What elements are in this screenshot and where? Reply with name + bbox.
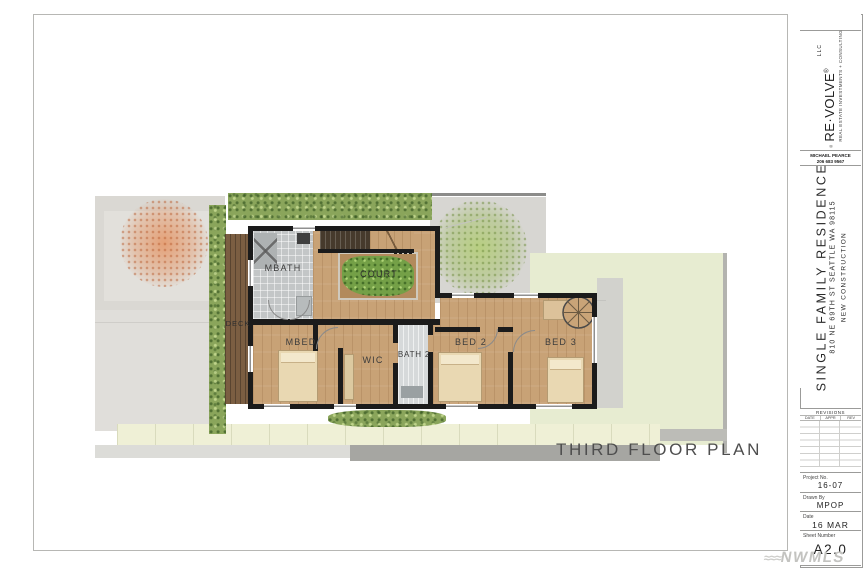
- project-no-value: 16-07: [800, 481, 861, 490]
- watermark-text: NWMLS: [779, 549, 846, 566]
- window: [592, 317, 597, 363]
- door-sill-marks: [394, 250, 414, 254]
- bed-2: [438, 352, 482, 402]
- site-roof-top-right-edge: [420, 193, 546, 196]
- project-address: 810 NE 69TH ST SEATTLE WA 98115: [830, 200, 839, 353]
- wall-segment: [498, 327, 513, 332]
- room-label-mbed: MBED: [277, 337, 325, 347]
- walkway-left: [95, 445, 353, 458]
- window: [452, 293, 474, 298]
- date-box: Date 16 MAR 2019: [800, 511, 861, 530]
- wall-segment: [338, 348, 343, 406]
- wall-segment: [248, 226, 253, 409]
- wall-segment: [393, 325, 398, 343]
- room-label-mbath: MBATH: [252, 263, 314, 273]
- contact-box: MICHAEL PEARCE 206 683 9567: [800, 150, 861, 165]
- spiral-stair: [562, 296, 595, 329]
- wall-segment: [248, 226, 440, 231]
- pillow: [441, 355, 479, 365]
- stair-landing: [370, 231, 414, 250]
- nautilus-shell-icon: [820, 145, 842, 148]
- room-label-bath2: BATH 2: [391, 350, 437, 359]
- bed-3: [547, 357, 584, 403]
- window: [536, 404, 572, 409]
- contact-phone: 206 683 9567: [800, 159, 861, 164]
- bush-bottom: [328, 410, 446, 427]
- wall-segment: [435, 327, 480, 332]
- window: [334, 404, 356, 409]
- brand-logo: LLC RE·VOLVE® REAL ESTATE INVESTMENTS + …: [800, 30, 862, 150]
- room-label-bed3: BED 3: [537, 337, 585, 347]
- wall-segment: [508, 352, 513, 409]
- window: [514, 293, 538, 298]
- tree-orange: [120, 199, 208, 287]
- wall-segment: [428, 319, 433, 335]
- revisions-grid: [800, 421, 861, 467]
- project-no-box: Project No. 16-07: [800, 472, 861, 492]
- bath2-sink: [401, 386, 423, 398]
- sheet-number-label: Sheet Number: [803, 533, 861, 539]
- lawn-right-edge: [723, 253, 727, 453]
- pillow: [550, 360, 581, 370]
- window: [446, 404, 478, 409]
- plan-title: THIRD FLOOR PLAN: [556, 440, 736, 460]
- room-label-bed2: BED 2: [447, 337, 495, 347]
- project-name: SINGLE FAMILY RESIDENCE: [814, 163, 830, 392]
- revisions-col-date: DATE: [800, 416, 821, 420]
- window: [248, 346, 253, 372]
- hedge-top: [228, 193, 432, 220]
- pillow: [281, 353, 315, 363]
- building-shadow: [597, 278, 623, 408]
- room-label-deck: DECK: [212, 319, 264, 328]
- wall-segment: [248, 319, 440, 325]
- site-patio-joint-line: [95, 322, 209, 323]
- drawn-by-box: Drawn By MPOP: [800, 492, 861, 511]
- title-block-spacer: [800, 14, 861, 30]
- nwmls-watermark: ≈≈≈NWMLS: [763, 549, 847, 566]
- brand-name: RE·VOLVE®: [823, 30, 837, 142]
- room-label-court: COURT: [344, 269, 414, 279]
- brand-tagline: REAL ESTATE INVESTMENTS + CONSULTING: [839, 30, 844, 142]
- wall-segment: [428, 352, 433, 406]
- drawn-by-value: MPOP: [800, 501, 861, 510]
- revisions-table: REVISIONS DATE APPR REV: [800, 408, 861, 472]
- site-patio-left: [95, 310, 209, 431]
- toilet: [297, 233, 310, 244]
- room-label-wic: WIC: [352, 355, 394, 365]
- wall-segment: [393, 363, 398, 406]
- tree-green: [432, 200, 527, 295]
- stair-treads: [320, 231, 370, 250]
- project-info: SINGLE FAMILY RESIDENCE 810 NE 69TH ST S…: [801, 166, 863, 389]
- revisions-col-appr: APPR: [821, 416, 842, 420]
- window: [293, 226, 315, 231]
- window: [264, 404, 290, 409]
- revisions-col-rev: REV: [841, 416, 861, 420]
- registered-mark: ®: [825, 68, 831, 73]
- drawing-sheet: MBATH COURT DECK MBED WIC BATH 2 BED 2 B…: [0, 0, 864, 576]
- project-type: NEW CONSTRUCTION: [841, 232, 849, 322]
- wall-segment: [435, 226, 440, 298]
- master-bed: [278, 350, 318, 402]
